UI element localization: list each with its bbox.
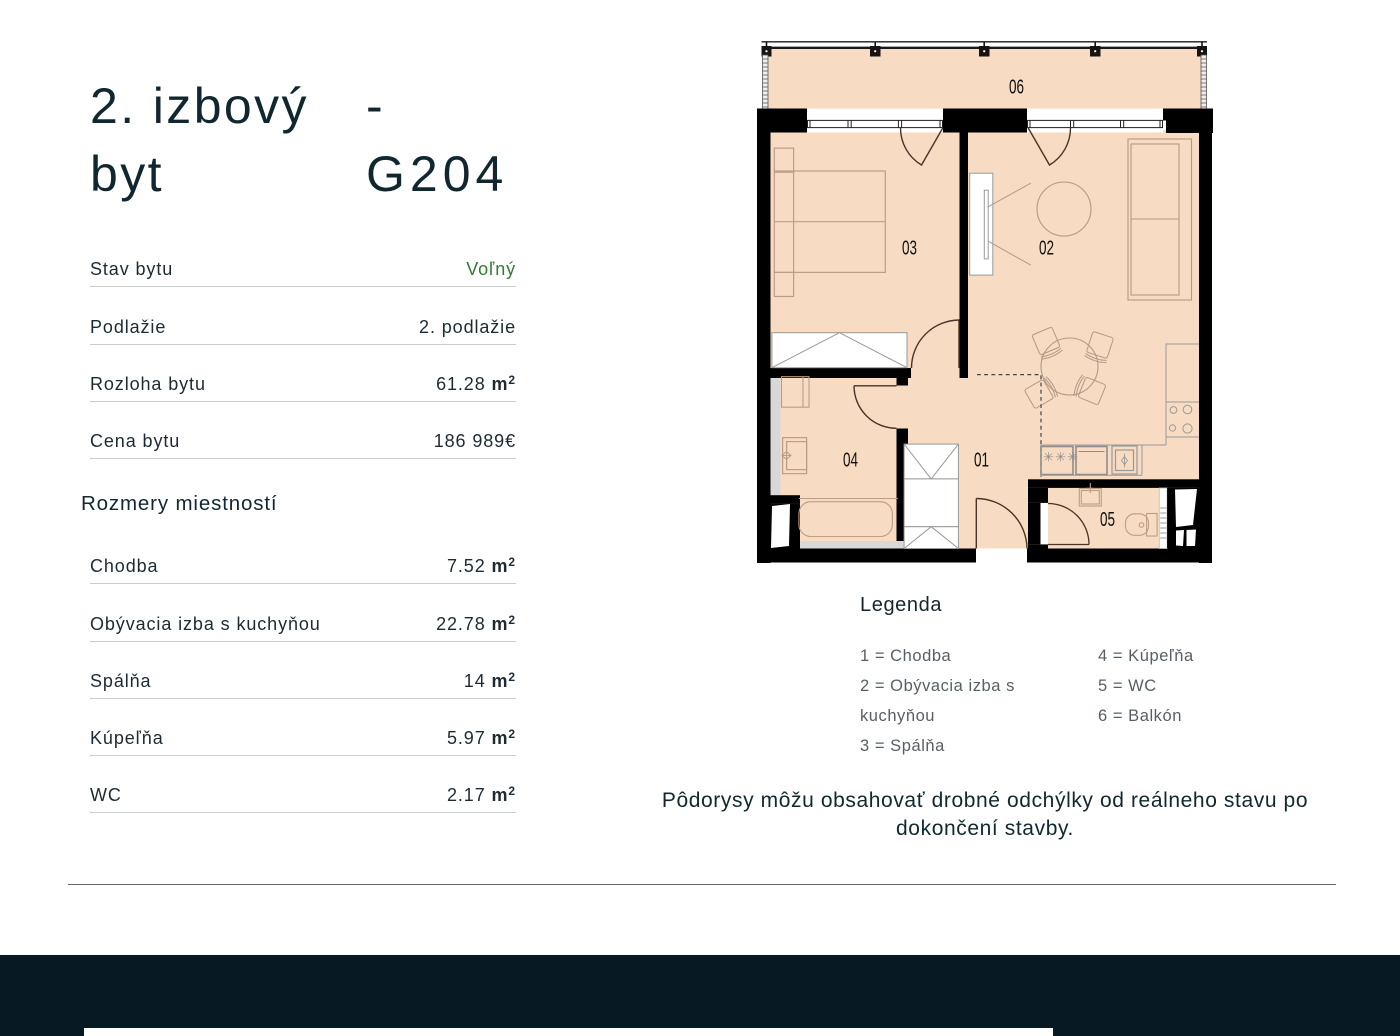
svg-text:04: 04 [843,449,858,472]
svg-text:03: 03 [902,237,917,260]
svg-text:✳✳✳: ✳✳✳ [1043,450,1079,465]
svg-text:06: 06 [1009,76,1024,99]
svg-text:02: 02 [1039,237,1054,260]
svg-text:05: 05 [1100,508,1115,531]
svg-text:01: 01 [974,449,989,472]
